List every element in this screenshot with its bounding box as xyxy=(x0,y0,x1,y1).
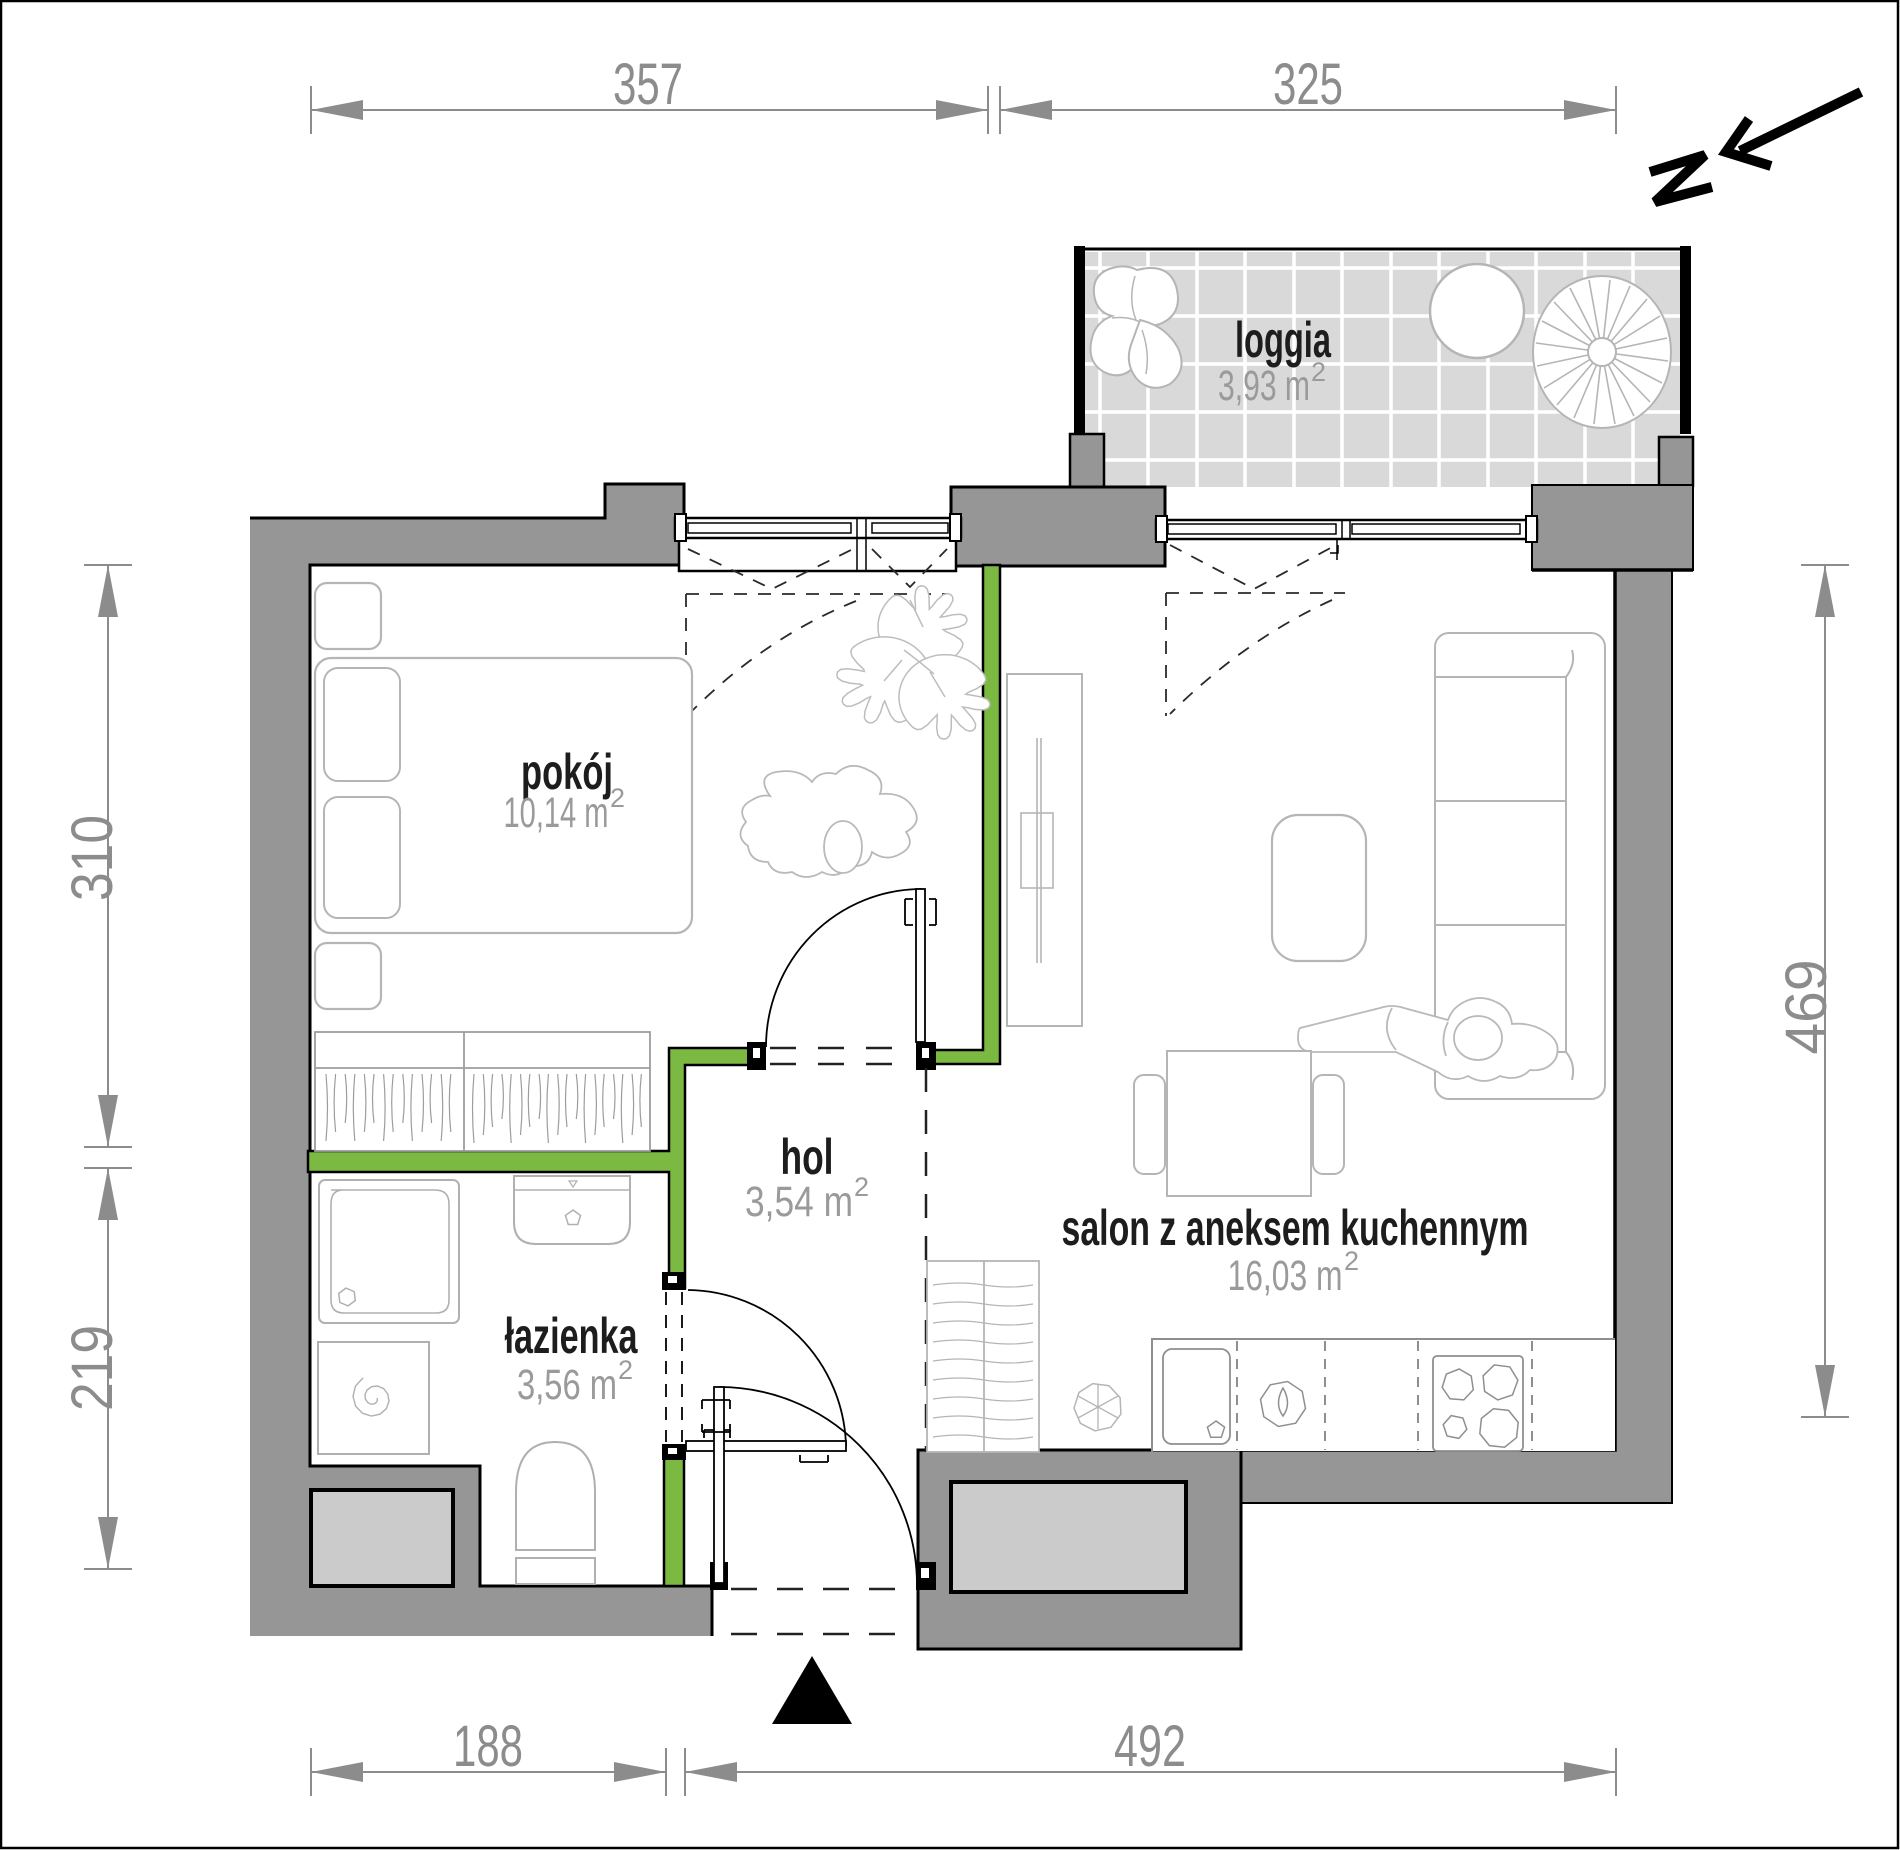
svg-text:3,56 m: 3,56 m xyxy=(517,1361,617,1409)
svg-text:357: 357 xyxy=(613,52,683,117)
svg-text:3,93 m: 3,93 m xyxy=(1218,362,1310,410)
svg-text:492: 492 xyxy=(1114,1714,1186,1779)
svg-text:2: 2 xyxy=(1344,1246,1359,1276)
svg-text:469: 469 xyxy=(1774,960,1839,1055)
svg-text:hol: hol xyxy=(781,1129,834,1185)
svg-text:3,54 m: 3,54 m xyxy=(745,1178,853,1226)
svg-text:2: 2 xyxy=(610,783,625,813)
svg-text:325: 325 xyxy=(1273,52,1343,117)
svg-text:salon z aneksem kuchennym: salon z aneksem kuchennym xyxy=(1062,1200,1529,1256)
svg-text:188: 188 xyxy=(453,1714,523,1779)
svg-text:10,14 m: 10,14 m xyxy=(504,789,609,837)
svg-text:2: 2 xyxy=(1311,357,1326,387)
svg-text:219: 219 xyxy=(60,1325,125,1411)
svg-text:2: 2 xyxy=(854,1172,869,1202)
svg-text:310: 310 xyxy=(60,815,125,901)
svg-text:2: 2 xyxy=(618,1355,633,1385)
svg-text:16,03 m: 16,03 m xyxy=(1228,1252,1343,1300)
